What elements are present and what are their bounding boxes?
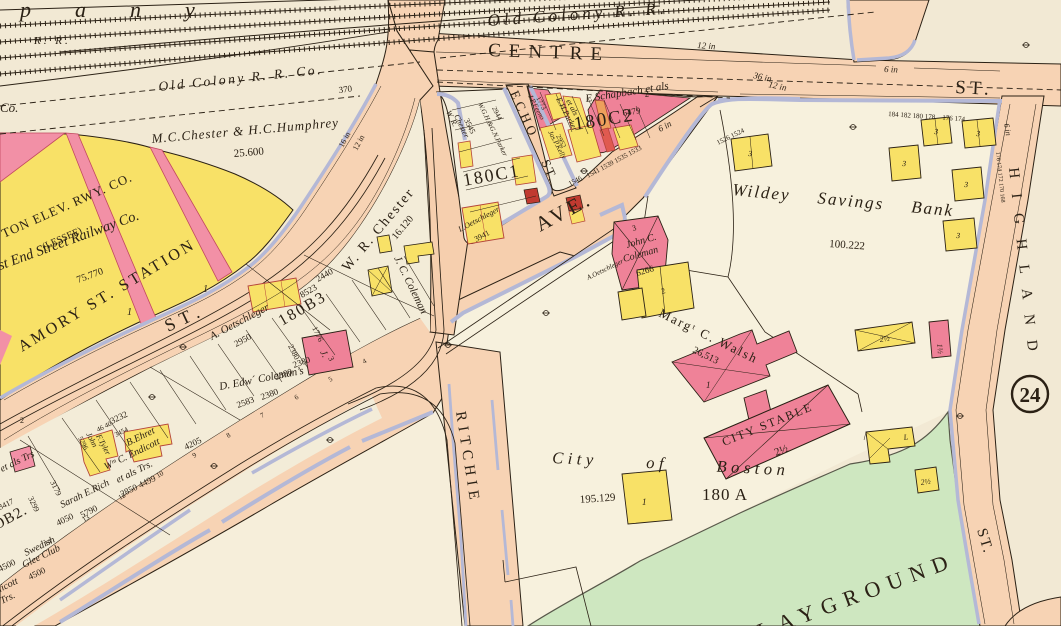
svg-text:3: 3 <box>955 231 961 240</box>
svg-text:100.222: 100.222 <box>829 238 866 252</box>
svg-text:1: 1 <box>706 380 711 390</box>
svg-text:3: 3 <box>933 127 939 136</box>
svg-text:3: 3 <box>963 180 969 189</box>
svg-text:2½: 2½ <box>879 334 890 344</box>
svg-text:12 in: 12 in <box>697 40 716 51</box>
svg-text:1: 1 <box>203 284 208 295</box>
svg-text:24: 24 <box>1020 383 1042 407</box>
svg-text:ST.: ST. <box>955 77 994 100</box>
svg-text:195.129: 195.129 <box>579 491 616 505</box>
svg-text:pany: pany <box>18 0 239 22</box>
svg-text:CENTRE: CENTRE <box>488 40 611 65</box>
svg-text:2½: 2½ <box>920 477 931 487</box>
svg-text:Co.: Co. <box>0 100 18 115</box>
svg-text:R. R.: R. R. <box>33 35 71 47</box>
svg-text:3: 3 <box>975 129 981 138</box>
svg-text:1½: 1½ <box>935 343 945 354</box>
svg-text:2: 2 <box>20 416 24 425</box>
svg-text:6 in: 6 in <box>884 64 899 74</box>
svg-text:1: 1 <box>127 307 132 318</box>
svg-text:3: 3 <box>901 159 907 168</box>
svg-text:3: 3 <box>747 149 753 158</box>
svg-text:180 A: 180 A <box>702 485 748 504</box>
svg-text:370: 370 <box>338 83 353 95</box>
svg-text:1: 1 <box>642 497 647 507</box>
